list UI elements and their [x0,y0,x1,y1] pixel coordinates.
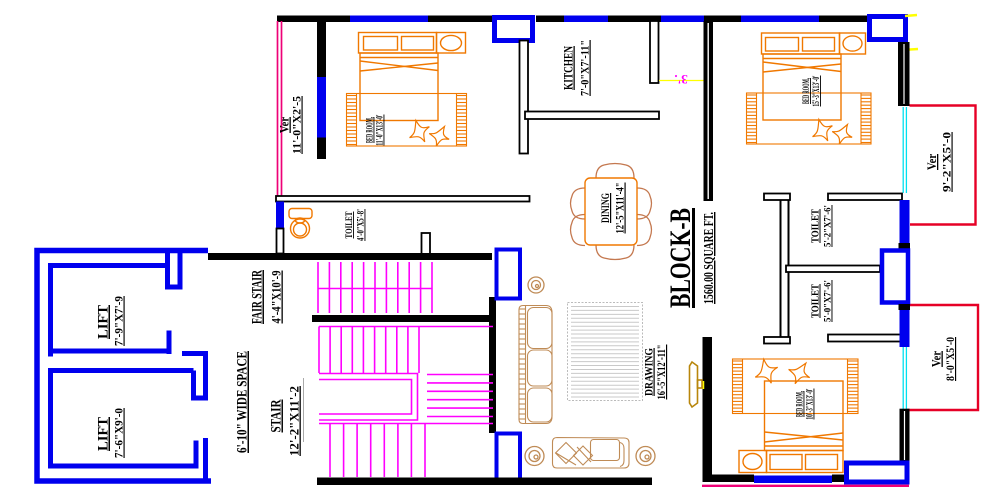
svg-text:DINING: DINING [598,193,612,223]
svg-text:1560.00 SQUARE FT.: 1560.00 SQUARE FT. [702,212,717,304]
svg-text:10'-3"X13'-0': 10'-3"X13'-0' [805,389,815,420]
svg-text:TOILET: TOILET [811,209,822,243]
svg-text:9'-2"X5'-0: 9'-2"X5'-0 [942,132,954,192]
svg-text:BED ROOM,: BED ROOM, [365,117,375,143]
svg-text:3'.: 3'. [674,72,687,87]
svg-text:KITCHEN: KITCHEN [562,46,576,90]
svg-text:7'-9"X7'-9: 7'-9"X7'-9 [114,296,126,346]
svg-text:8'-0"X5'-0: 8'-0"X5'-0 [945,337,957,381]
svg-text:Ver: Ver [924,154,939,170]
svg-text:TOILET: TOILET [811,284,822,318]
svg-text:FAIR STAIR: FAIR STAIR [250,270,266,324]
svg-text:12'-2"X11'-2: 12'-2"X11'-2 [287,386,302,456]
svg-text:Ver: Ver [277,117,292,133]
svg-text:4'-4"X10'-9: 4'-4"X10'-9 [269,270,284,323]
svg-text:11'-0"X13'-0': 11'-0"X13'-0' [375,115,385,146]
svg-text:16'-5"X12'-11": 16'-5"X12'-11" [656,345,668,400]
svg-text:4'-0"X5'-8': 4'-0"X5'-8' [356,209,366,241]
svg-text:5'-0"X7'-6': 5'-0"X7'-6' [824,280,834,322]
svg-text:5'-2"X7'-6': 5'-2"X7'-6' [824,205,834,247]
svg-text:BED ROOM,: BED ROOM, [801,78,811,104]
svg-text:LIFT: LIFT [96,305,112,339]
svg-text:15'-3"X13'-0': 15'-3"X13'-0' [811,76,821,107]
svg-text:BED ROOM,: BED ROOM, [795,391,805,417]
svg-text:6'-10" WIDE SPACE: 6'-10" WIDE SPACE [235,351,251,453]
svg-text:11'-0"X2'-5: 11'-0"X2'-5 [292,96,304,154]
svg-text:BLOCK-B: BLOCK-B [664,208,697,308]
svg-text:STAIR: STAIR [269,399,285,432]
svg-text:12'-5"X11'-4": 12'-5"X11'-4" [615,183,627,234]
svg-text:7'-0"X7'-11": 7'-0"X7'-11" [578,40,592,96]
svg-text:7'-6"X9'-0: 7'-6"X9'-0 [114,408,126,458]
svg-text:Ver: Ver [929,351,944,367]
svg-text:TOILET: TOILET [344,212,354,239]
svg-text:DRAWING: DRAWING [642,348,656,396]
svg-text:LIFT: LIFT [96,417,112,451]
